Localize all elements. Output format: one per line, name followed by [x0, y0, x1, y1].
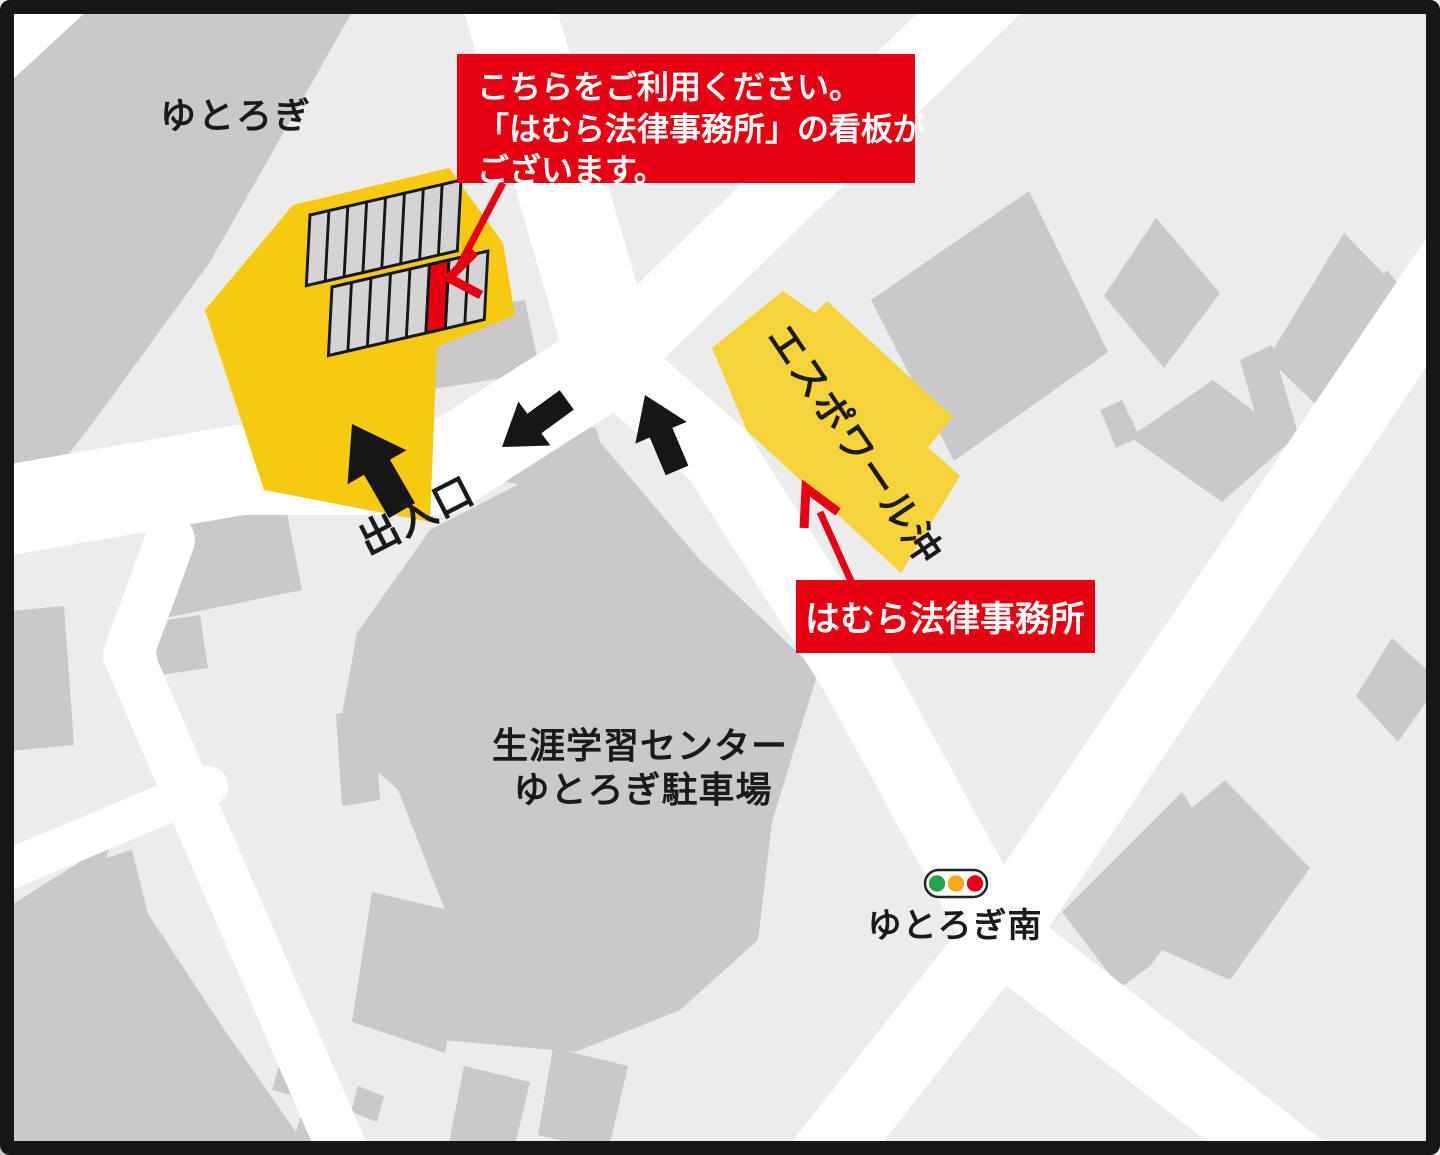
parking-callout-line3: ございます。	[477, 152, 666, 188]
access-map: エスポワール沖 ゆとろぎ 出入口 生涯学習センター ゆとろぎ駐車場 こちらをご利…	[0, 0, 1440, 1155]
building	[336, 706, 380, 806]
parking-callout-line1: こちらをご利用ください。	[477, 69, 861, 105]
signal-green-lamp	[929, 875, 945, 891]
office-callout-label: はむら法律事務所	[805, 600, 1085, 639]
traffic-light-icon	[925, 870, 987, 897]
yutorogi-label: ゆとろぎ	[160, 95, 312, 136]
parking-callout-line2: 「はむら法律事務所」の看板が	[477, 111, 925, 147]
signal-name-label: ゆとろぎ南	[868, 907, 1043, 945]
map-canvas: エスポワール沖 ゆとろぎ 出入口 生涯学習センター ゆとろぎ駐車場 こちらをご利…	[0, 0, 1440, 1155]
signal-red-lamp	[967, 875, 983, 891]
signal-amber-lamp	[948, 875, 964, 891]
center-label-line1: 生涯学習センター	[492, 725, 788, 766]
center-label-line2: ゆとろぎ駐車場	[513, 769, 772, 810]
